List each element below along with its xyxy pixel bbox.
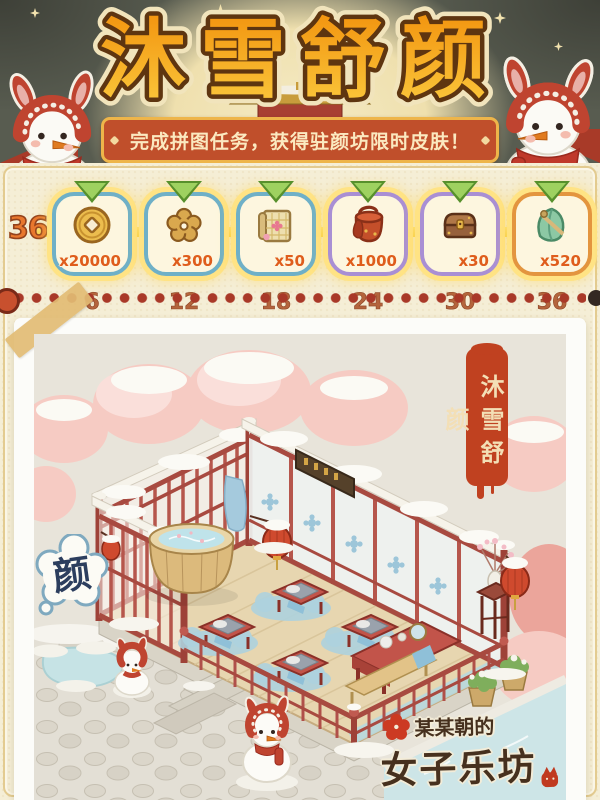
chevron-down-icon (442, 181, 478, 203)
event-header: 沐雪舒颜 沐雪舒颜 完成拼图任务，获得驻颜坊限时皮肤！ (0, 0, 600, 163)
chevron-down-icon (534, 181, 570, 203)
reward-card[interactable]: x30 (420, 192, 500, 276)
scroll-icon (253, 204, 299, 248)
page-title: 沐雪舒颜 (100, 10, 500, 110)
logo-text-small: 某某朝的 (414, 710, 495, 741)
event-panel: 36 x20000 6 (0, 163, 600, 800)
chest-icon (437, 204, 483, 248)
seal-text: 沐雪舒颜 (466, 360, 508, 486)
skin-preview-art: 沐雪舒颜 颜 某某朝的 (34, 334, 566, 800)
reward-count: x520 (540, 252, 581, 270)
wooden-bathtub (146, 524, 238, 606)
reward-count: x20000 (59, 252, 121, 270)
hanging-towel (225, 476, 247, 531)
logo-text-large: 女子乐坊 (380, 736, 537, 794)
reward-card[interactable]: x520 (512, 192, 592, 276)
plum-flower-icon (161, 204, 207, 248)
reward-card[interactable]: x300 (144, 192, 224, 276)
game-logo: 某某朝的 女子乐坊 (379, 708, 561, 795)
snowman-mascot-right (486, 50, 600, 163)
current-progress: 36 (8, 211, 48, 246)
chevron-down-icon (166, 181, 202, 203)
reward-card[interactable]: x50 (236, 192, 316, 276)
skin-preview-frame: 沐雪舒颜 颜 某某朝的 (14, 318, 586, 800)
logo-flower-icon (381, 712, 412, 743)
shop-sign-badge: 颜 (34, 534, 112, 620)
chevron-down-icon (74, 181, 110, 203)
chevron-down-icon (258, 181, 294, 203)
dotted-divider (14, 292, 586, 304)
jade-pouch-icon (529, 204, 575, 248)
title-seal-stamp: 沐雪舒颜 (466, 348, 508, 486)
reward-count: x30 (458, 252, 489, 270)
reward-card[interactable]: x1000 (328, 192, 408, 276)
event-subtitle-banner: 完成拼图任务，获得驻颜坊限时皮肤！ (101, 117, 499, 163)
snowman-mascot-left (0, 64, 110, 163)
coin-icon (69, 204, 115, 248)
reward-count: x1000 (346, 252, 397, 270)
reward-count: x50 (274, 252, 305, 270)
chevron-down-icon (350, 181, 386, 203)
red-tub-icon (345, 204, 391, 248)
logo-cat-icon (538, 764, 561, 791)
sign-character: 颜 (50, 551, 94, 600)
ribbon-dot (110, 135, 120, 145)
event-subtitle: 完成拼图任务，获得驻颜坊限时皮肤！ (130, 127, 470, 154)
reward-count: x300 (172, 252, 213, 270)
reward-card[interactable]: x20000 (52, 192, 132, 276)
